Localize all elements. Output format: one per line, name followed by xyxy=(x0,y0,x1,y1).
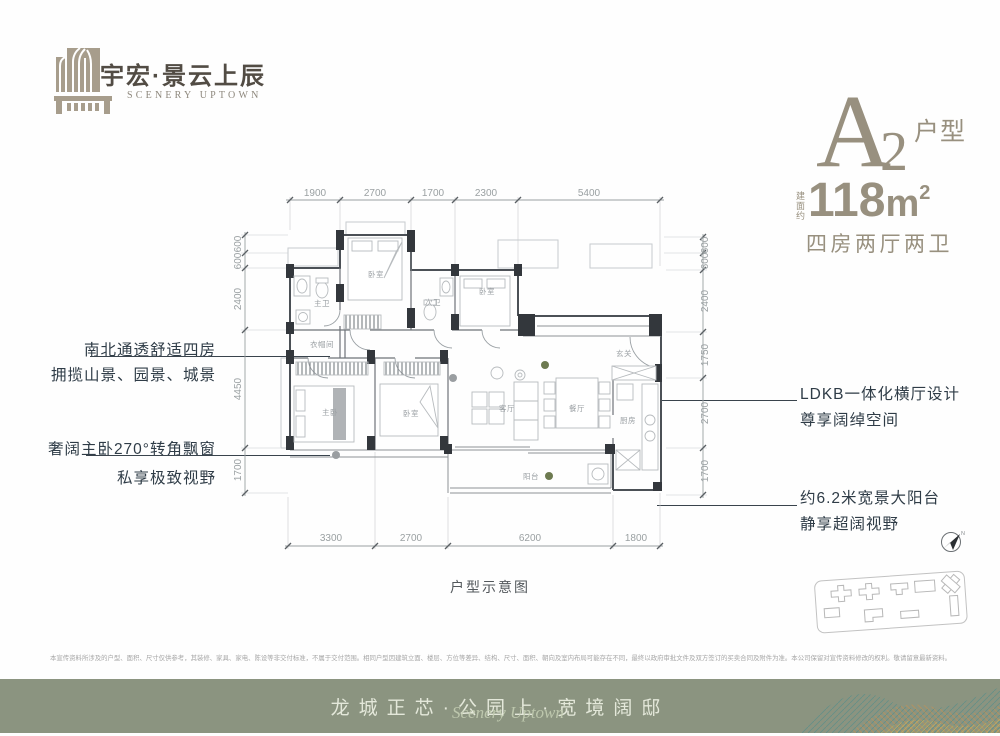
room-label-master-bath: 主卫 xyxy=(314,298,330,308)
room-label-bedroom-right: 卧室 xyxy=(479,286,495,296)
dim-right-0: 600 xyxy=(700,236,711,253)
annotation-balcony-line1: 约6.2米宽景大阳台 xyxy=(800,486,990,508)
dim-bottom-3: 1800 xyxy=(625,533,648,544)
compass-icon: N xyxy=(934,524,970,560)
dim-right-2: 2400 xyxy=(700,289,711,312)
compass-north-label: N xyxy=(961,531,965,537)
unit-area-exponent: 2 xyxy=(919,182,930,204)
dim-left-4: 1700 xyxy=(233,458,244,481)
room-label-bedroom-left: 卧室 xyxy=(403,408,419,418)
dim-bottom-2: 6200 xyxy=(519,533,542,544)
unit-layout: 四房两厅两卫 xyxy=(806,228,953,258)
dim-right-3: 1750 xyxy=(700,343,711,366)
site-plan-map xyxy=(812,566,972,642)
dim-bottom-0: 3300 xyxy=(320,533,343,544)
annotation-ldkb-line2: 尊享阔绰空间 xyxy=(800,408,990,430)
wardrobe-bedroom-left xyxy=(384,362,440,375)
dim-top-4: 5400 xyxy=(578,188,601,199)
room-label-second-bath: 次卫 xyxy=(425,297,441,307)
unit-area: 118m2 xyxy=(808,177,930,225)
brand-name-cn: 宇宏·景云上辰 xyxy=(100,56,266,91)
washer xyxy=(588,464,608,484)
unit-area-prefix: 建面约 xyxy=(796,191,806,221)
room-label-master-bedroom: 主卧 xyxy=(322,407,338,417)
wardrobe-top-bedroom xyxy=(344,315,381,329)
dim-left-3: 4450 xyxy=(233,377,244,400)
plan-caption: 户型示意图 xyxy=(420,577,560,597)
dim-bottom-1: 2700 xyxy=(400,533,423,544)
sofa xyxy=(514,382,538,440)
room-label-dining: 餐厅 xyxy=(569,404,585,413)
dim-left-0: 600 xyxy=(233,235,244,252)
annotation-north-south-line2: 拥揽山景、园景、城景 xyxy=(38,363,216,385)
flyer-page: { "brand": { "logo_cn": "宇宏·景云上辰", "logo… xyxy=(0,0,1000,736)
room-label-entry: 玄关 xyxy=(616,348,632,358)
floor-plan: 1900 2700 1700 2300 5400 3300 2700 6200 … xyxy=(220,180,780,610)
dim-right-5: 1700 xyxy=(700,459,711,482)
dim-top-3: 2300 xyxy=(475,188,498,199)
kitchen-counter xyxy=(642,384,658,470)
annotation-ldkb-line1: LDKB一体化横厅设计 xyxy=(800,382,990,404)
room-label-balcony: 阳台 xyxy=(523,471,539,481)
dim-right-1: 600 xyxy=(700,252,711,269)
footer-signature-script: Scenery Uptown xyxy=(452,703,564,723)
unit-area-unit: m xyxy=(885,183,919,225)
wardrobe-master xyxy=(296,362,368,375)
dim-right-4: 2700 xyxy=(700,401,711,424)
dim-top-1: 2700 xyxy=(364,188,387,199)
room-label-living: 客厅 xyxy=(499,403,515,413)
dim-left-1: 600 xyxy=(233,252,244,269)
room-label-closet: 衣帽间 xyxy=(310,339,334,349)
dining-table xyxy=(556,378,598,428)
unit-number: 2 xyxy=(880,124,908,180)
brand-name-en: SCENERY UPTOWN xyxy=(127,90,262,101)
unit-type-label: 户型 xyxy=(914,119,966,145)
unit-area-value: 118 xyxy=(808,174,885,227)
dim-top-2: 1700 xyxy=(422,188,445,199)
dim-top-0: 1900 xyxy=(304,188,327,199)
dim-left-2: 2400 xyxy=(233,287,244,310)
room-label-kitchen: 厨房 xyxy=(620,415,636,425)
annotation-master-bay-line2: 私享极致视野 xyxy=(38,466,216,488)
room-label-bedroom-top: 卧室 xyxy=(368,269,384,279)
disclaimer-text: 本宣传资料所涉及的户型、面积、尺寸仅供参考，其装修、家具、家电、陈设等非交付标准… xyxy=(50,653,950,662)
